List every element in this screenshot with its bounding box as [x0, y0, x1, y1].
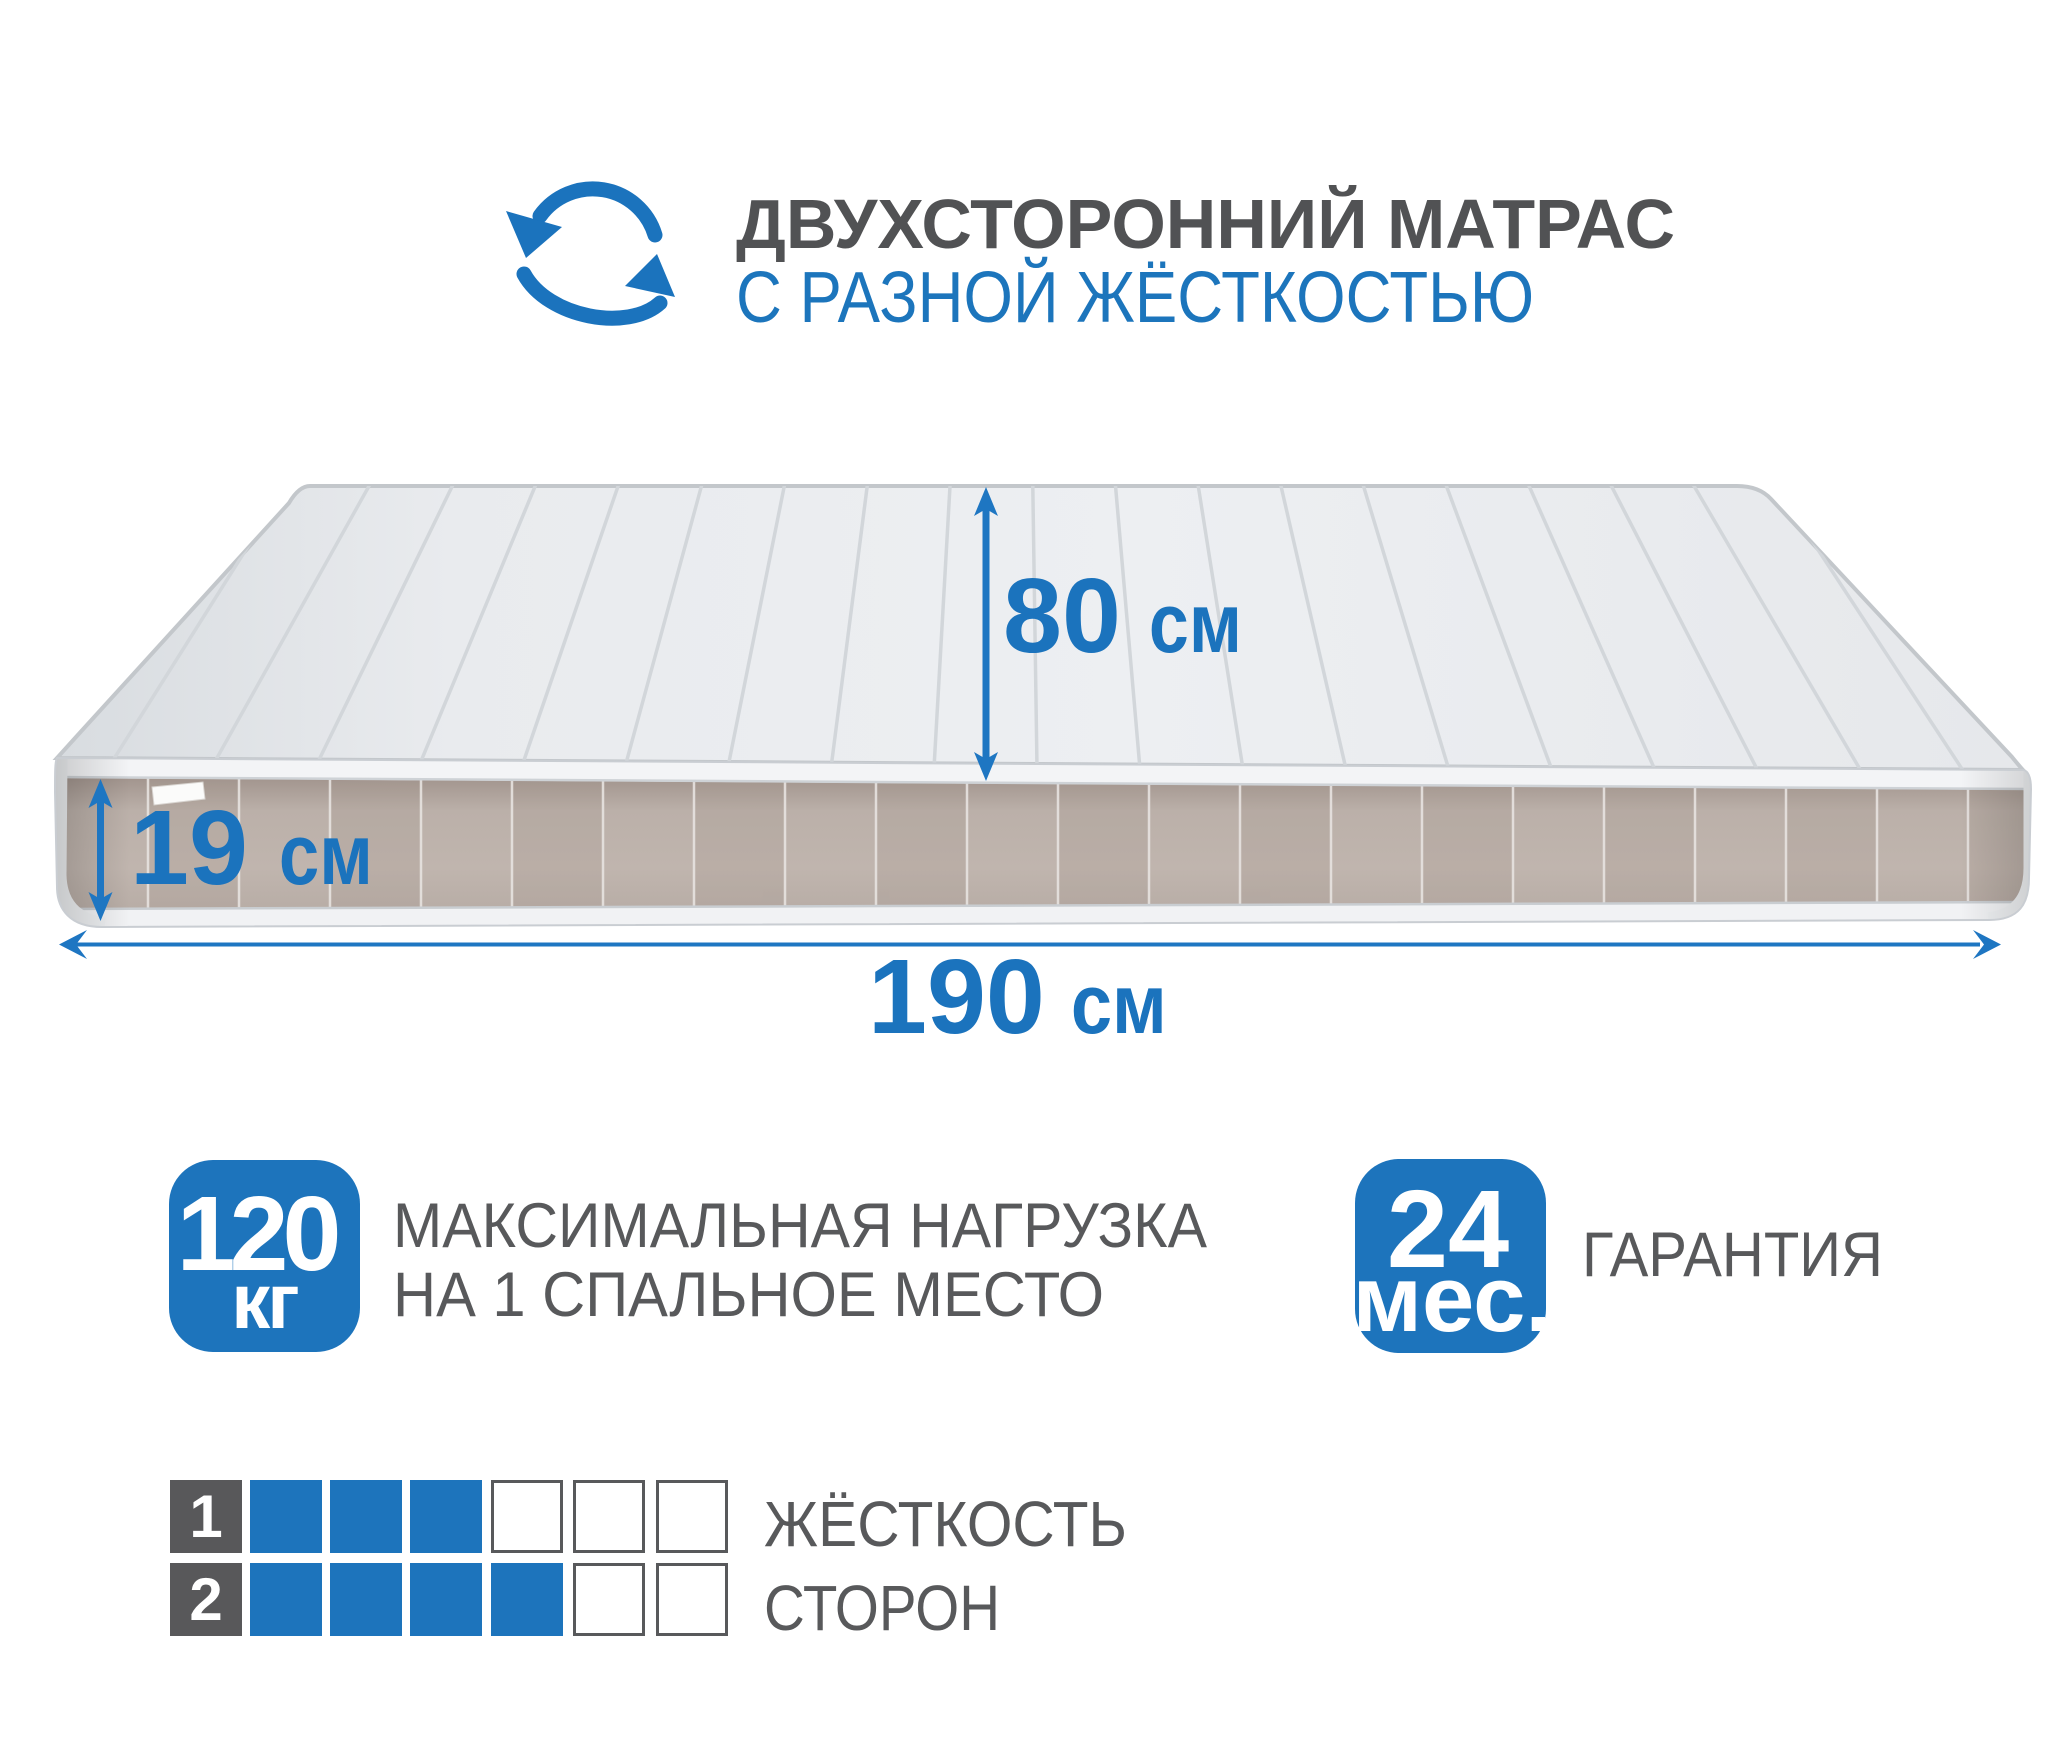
svg-text:1: 1 [189, 1483, 222, 1550]
svg-text:мес.: мес. [1353, 1246, 1552, 1351]
svg-text:ГАРАНТИЯ: ГАРАНТИЯ [1582, 1220, 1883, 1290]
svg-text:С РАЗНОЙ ЖЁСТКОСТЬЮ: С РАЗНОЙ ЖЁСТКОСТЬЮ [736, 256, 1534, 338]
svg-text:МАКСИМАЛЬНАЯ НАГРУЗКА: МАКСИМАЛЬНАЯ НАГРУЗКА [393, 1191, 1207, 1261]
svg-text:ДВУХСТОРОННИЙ МАТРАС: ДВУХСТОРОННИЙ МАТРАС [736, 184, 1675, 263]
svg-text:НА 1 СПАЛЬНОЕ МЕСТО: НА 1 СПАЛЬНОЕ МЕСТО [393, 1260, 1104, 1330]
svg-text:кг: кг [231, 1257, 298, 1345]
svg-text:ЖЁСТКОСТЬ: ЖЁСТКОСТЬ [764, 1488, 1127, 1560]
svg-text:190см: 190см [868, 938, 1167, 1056]
svg-text:СТОРОН: СТОРОН [764, 1572, 1000, 1644]
svg-text:2: 2 [189, 1566, 222, 1633]
